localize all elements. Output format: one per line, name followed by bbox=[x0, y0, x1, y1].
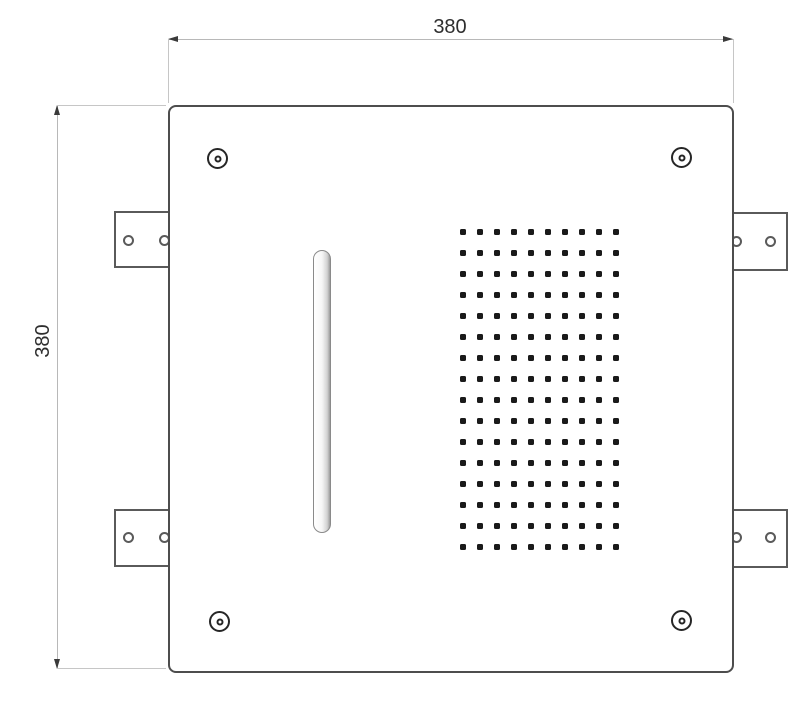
nozzle-dot bbox=[494, 544, 500, 550]
nozzle-dot bbox=[579, 523, 585, 529]
nozzle-dot bbox=[545, 439, 551, 445]
extension-line-left-bottom bbox=[57, 668, 166, 669]
nozzle-dot bbox=[528, 334, 534, 340]
nozzle-dot bbox=[579, 481, 585, 487]
nozzle-dot bbox=[545, 271, 551, 277]
nozzle-dot bbox=[528, 502, 534, 508]
nozzle-dot bbox=[460, 544, 466, 550]
nozzle-dot bbox=[528, 271, 534, 277]
screw-bottom-right-icon bbox=[671, 610, 692, 631]
nozzle-dot bbox=[477, 397, 483, 403]
nozzle-dot bbox=[477, 355, 483, 361]
nozzle-dot bbox=[477, 544, 483, 550]
screw-center bbox=[678, 154, 685, 161]
nozzle-dot bbox=[528, 313, 534, 319]
nozzle-dot bbox=[545, 418, 551, 424]
nozzle-dot bbox=[460, 418, 466, 424]
nozzle-dot bbox=[613, 544, 619, 550]
nozzle-dot bbox=[613, 229, 619, 235]
nozzle-dot bbox=[562, 481, 568, 487]
nozzle-dot bbox=[528, 250, 534, 256]
nozzle-dot bbox=[545, 481, 551, 487]
nozzle-dot bbox=[460, 439, 466, 445]
nozzle-dot bbox=[511, 313, 517, 319]
nozzle-dot bbox=[477, 271, 483, 277]
nozzle-dot bbox=[528, 481, 534, 487]
nozzle-dot bbox=[494, 250, 500, 256]
nozzle-dot bbox=[613, 313, 619, 319]
nozzle-dot bbox=[511, 502, 517, 508]
nozzle-dot bbox=[545, 460, 551, 466]
nozzle-dot bbox=[494, 292, 500, 298]
nozzle-dot bbox=[460, 292, 466, 298]
nozzle-dot bbox=[460, 502, 466, 508]
nozzle-dot bbox=[511, 439, 517, 445]
nozzle-dot bbox=[596, 376, 602, 382]
nozzle-dot bbox=[494, 418, 500, 424]
nozzle-dot bbox=[511, 460, 517, 466]
nozzle-dot bbox=[545, 334, 551, 340]
nozzle-dot bbox=[545, 313, 551, 319]
nozzle-dot bbox=[545, 523, 551, 529]
nozzle-dot bbox=[562, 439, 568, 445]
nozzle-dot bbox=[494, 481, 500, 487]
nozzle-dot bbox=[613, 376, 619, 382]
nozzle-dot bbox=[596, 292, 602, 298]
nozzle-dot bbox=[460, 229, 466, 235]
nozzle-dot bbox=[562, 334, 568, 340]
nozzle-dot bbox=[460, 460, 466, 466]
nozzle-dot bbox=[545, 376, 551, 382]
nozzle-dot bbox=[613, 271, 619, 277]
nozzle-dot bbox=[511, 544, 517, 550]
nozzle-dot bbox=[494, 502, 500, 508]
nozzle-dot bbox=[562, 544, 568, 550]
nozzle-dot bbox=[596, 397, 602, 403]
nozzle-dot bbox=[596, 271, 602, 277]
nozzle-dot bbox=[477, 313, 483, 319]
nozzle-dot bbox=[545, 544, 551, 550]
nozzle-dot bbox=[613, 250, 619, 256]
nozzle-dot bbox=[460, 523, 466, 529]
nozzle-dot bbox=[596, 523, 602, 529]
nozzle-dot bbox=[613, 502, 619, 508]
nozzle-dot bbox=[494, 460, 500, 466]
nozzle-dot bbox=[545, 292, 551, 298]
nozzle-dot bbox=[477, 481, 483, 487]
nozzle-dot bbox=[511, 250, 517, 256]
nozzle-dot bbox=[477, 439, 483, 445]
nozzle-dot bbox=[494, 397, 500, 403]
technical-drawing-canvas: 380 380 bbox=[0, 0, 800, 707]
nozzle-dot bbox=[528, 292, 534, 298]
nozzle-dot bbox=[528, 460, 534, 466]
arrow-up-icon bbox=[54, 105, 60, 115]
nozzle-dot bbox=[477, 376, 483, 382]
nozzle-dot bbox=[613, 418, 619, 424]
nozzle-dot bbox=[460, 313, 466, 319]
nozzle-dot bbox=[477, 334, 483, 340]
nozzle-dot bbox=[545, 502, 551, 508]
nozzle-dot bbox=[528, 229, 534, 235]
nozzle-dot bbox=[477, 502, 483, 508]
nozzle-dot bbox=[494, 313, 500, 319]
nozzle-dot bbox=[460, 271, 466, 277]
nozzle-dot bbox=[596, 502, 602, 508]
nozzle-dot bbox=[562, 418, 568, 424]
extension-line-top-right bbox=[733, 39, 734, 103]
nozzle-dot bbox=[494, 334, 500, 340]
nozzle-dot bbox=[511, 271, 517, 277]
nozzle-dot bbox=[545, 355, 551, 361]
nozzle-dot bbox=[545, 397, 551, 403]
screw-top-left-icon bbox=[207, 148, 228, 169]
screw-center bbox=[678, 617, 685, 624]
nozzle-dot bbox=[511, 481, 517, 487]
nozzle-dot bbox=[562, 292, 568, 298]
nozzle-dot bbox=[562, 250, 568, 256]
nozzle-dot bbox=[613, 355, 619, 361]
nozzle-dot bbox=[511, 523, 517, 529]
nozzle-dot bbox=[596, 481, 602, 487]
nozzle-dot bbox=[596, 439, 602, 445]
dimension-width-label: 380 bbox=[433, 17, 466, 37]
dimension-height-label: 380 bbox=[33, 324, 53, 357]
nozzle-dot bbox=[613, 334, 619, 340]
nozzle-dot bbox=[596, 544, 602, 550]
arrow-right-icon bbox=[723, 36, 733, 42]
nozzle-dot bbox=[562, 355, 568, 361]
nozzle-dot bbox=[579, 250, 585, 256]
nozzle-dot bbox=[579, 544, 585, 550]
nozzle-dot bbox=[494, 439, 500, 445]
nozzle-dot bbox=[596, 250, 602, 256]
nozzle-dot bbox=[562, 523, 568, 529]
nozzle-dot bbox=[596, 229, 602, 235]
bracket-hole bbox=[123, 532, 134, 543]
nozzle-dot bbox=[562, 271, 568, 277]
nozzle-dot bbox=[477, 523, 483, 529]
nozzle-dot bbox=[562, 229, 568, 235]
nozzle-dot bbox=[528, 418, 534, 424]
nozzle-dot bbox=[528, 439, 534, 445]
extension-line-top-left bbox=[168, 39, 169, 103]
nozzle-dot bbox=[596, 313, 602, 319]
nozzle-dot bbox=[613, 523, 619, 529]
nozzle-dot bbox=[562, 502, 568, 508]
waterfall-slot bbox=[313, 250, 331, 533]
nozzle-dot bbox=[579, 355, 585, 361]
nozzle-dot bbox=[596, 418, 602, 424]
nozzle-dot bbox=[460, 334, 466, 340]
nozzle-dot bbox=[545, 250, 551, 256]
nozzle-dot bbox=[477, 460, 483, 466]
nozzle-dot bbox=[562, 313, 568, 319]
nozzle-grid bbox=[460, 229, 619, 550]
nozzle-dot bbox=[596, 460, 602, 466]
nozzle-dot bbox=[494, 229, 500, 235]
nozzle-dot bbox=[511, 334, 517, 340]
nozzle-dot bbox=[613, 397, 619, 403]
nozzle-dot bbox=[562, 460, 568, 466]
nozzle-dot bbox=[613, 460, 619, 466]
nozzle-dot bbox=[579, 229, 585, 235]
nozzle-dot bbox=[579, 502, 585, 508]
screw-center bbox=[214, 155, 221, 162]
panel-body bbox=[168, 105, 734, 673]
nozzle-dot bbox=[528, 523, 534, 529]
bracket-hole bbox=[123, 235, 134, 246]
nozzle-dot bbox=[579, 271, 585, 277]
dimension-width-line bbox=[168, 39, 733, 40]
nozzle-dot bbox=[460, 481, 466, 487]
nozzle-dot bbox=[562, 376, 568, 382]
nozzle-dot bbox=[579, 313, 585, 319]
screw-center bbox=[216, 618, 223, 625]
nozzle-dot bbox=[460, 250, 466, 256]
nozzle-dot bbox=[511, 229, 517, 235]
nozzle-dot bbox=[511, 397, 517, 403]
nozzle-dot bbox=[579, 439, 585, 445]
nozzle-dot bbox=[477, 250, 483, 256]
nozzle-dot bbox=[494, 355, 500, 361]
dimension-height-line bbox=[57, 105, 58, 669]
nozzle-dot bbox=[477, 229, 483, 235]
nozzle-dot bbox=[579, 418, 585, 424]
nozzle-dot bbox=[613, 292, 619, 298]
nozzle-dot bbox=[596, 334, 602, 340]
nozzle-dot bbox=[613, 481, 619, 487]
nozzle-dot bbox=[579, 376, 585, 382]
nozzle-dot bbox=[562, 397, 568, 403]
nozzle-dot bbox=[511, 418, 517, 424]
nozzle-dot bbox=[528, 376, 534, 382]
nozzle-dot bbox=[494, 271, 500, 277]
nozzle-dot bbox=[545, 229, 551, 235]
arrow-left-icon bbox=[168, 36, 178, 42]
nozzle-dot bbox=[613, 439, 619, 445]
bracket-hole bbox=[765, 236, 776, 247]
nozzle-dot bbox=[579, 460, 585, 466]
nozzle-dot bbox=[579, 292, 585, 298]
nozzle-dot bbox=[596, 355, 602, 361]
nozzle-dot bbox=[511, 376, 517, 382]
bracket-hole bbox=[765, 532, 776, 543]
nozzle-dot bbox=[460, 397, 466, 403]
nozzle-dot bbox=[528, 355, 534, 361]
nozzle-dot bbox=[579, 334, 585, 340]
nozzle-dot bbox=[511, 292, 517, 298]
nozzle-dot bbox=[460, 376, 466, 382]
nozzle-dot bbox=[460, 355, 466, 361]
screw-top-right-icon bbox=[671, 147, 692, 168]
nozzle-dot bbox=[494, 523, 500, 529]
nozzle-dot bbox=[477, 292, 483, 298]
screw-bottom-left-icon bbox=[209, 611, 230, 632]
extension-line-left-top bbox=[57, 105, 166, 106]
nozzle-dot bbox=[528, 397, 534, 403]
nozzle-dot bbox=[477, 418, 483, 424]
nozzle-dot bbox=[579, 397, 585, 403]
nozzle-dot bbox=[494, 376, 500, 382]
nozzle-dot bbox=[511, 355, 517, 361]
nozzle-dot bbox=[528, 544, 534, 550]
